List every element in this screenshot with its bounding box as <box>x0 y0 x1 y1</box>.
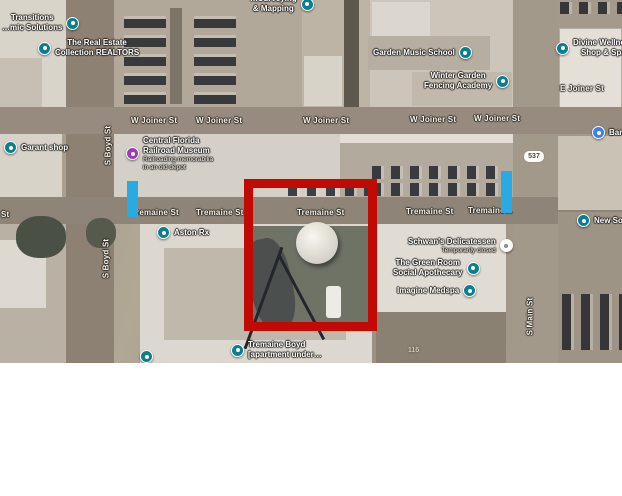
poi-pin-icon <box>467 262 480 275</box>
poi-label: Garden Music School <box>373 48 455 58</box>
street-label-s-main: S Main St <box>526 291 535 343</box>
street-label-w-joiner: W Joiner St <box>303 116 349 125</box>
street-label-e-joiner: E Joiner St <box>560 84 604 93</box>
poi-pin-icon <box>301 0 314 11</box>
poi-pin-icon <box>496 75 509 88</box>
poi-railroad-museum: Central Florida Railroad Museum Railroad… <box>126 136 213 171</box>
legend: Barricade | Local Access Only Work Site <box>0 363 622 496</box>
poi-label: Aston Rx <box>174 228 209 238</box>
poi-label: …mic Solutions <box>2 23 62 33</box>
poi-pin-icon <box>231 344 244 357</box>
street-label-tremaine: Tremaine St <box>406 207 454 216</box>
work-site-box[interactable] <box>244 179 377 331</box>
poi-pin-icon <box>463 284 476 297</box>
street-label-tremaine: Tremaine St <box>196 208 244 217</box>
map-parked-cars <box>124 14 166 104</box>
poi-label: Divine Wellness <box>573 38 622 48</box>
map-building <box>558 136 622 210</box>
map-parked-cars <box>194 12 236 104</box>
shopping-pin-icon <box>592 126 605 139</box>
poi-transitions: Transitions…mic Solutions <box>2 13 79 33</box>
street-label-tremaine: St <box>1 210 9 219</box>
poi-label: Central Florida <box>143 136 199 146</box>
poi-description: Railroading memorabilia <box>143 156 213 164</box>
poi-label: The Real Estate <box>67 38 127 48</box>
poi-label: New Soluti… <box>594 216 622 226</box>
street-label-w-joiner: W Joiner St <box>131 116 177 125</box>
map-building <box>304 56 342 106</box>
poi-imagine-medspa: Imagine Medspa <box>397 284 476 297</box>
map-parked-cars <box>372 166 504 179</box>
poi-pin-icon <box>126 147 139 160</box>
poi-wellness: Divine WellnessShop & Spa <box>556 38 622 58</box>
poi-label: Imagine Medspa <box>397 286 459 296</box>
street-label-w-joiner: W Joiner St <box>410 115 456 124</box>
poi-green-room: The Green RoomSocial Apothecary <box>393 258 480 278</box>
poi-label: [apartment under… <box>248 350 322 360</box>
street-label-tremaine: remaine St <box>136 208 179 217</box>
poi-label: Winter Garden <box>431 71 486 81</box>
poi-label: Fencing Academy <box>424 81 492 91</box>
poi-surveying: …Surveying& Mapping <box>250 0 314 14</box>
poi-label: Tremaine Boyd <box>248 340 305 350</box>
map-trees <box>16 216 66 258</box>
route-shield-537: 537 <box>523 150 545 163</box>
poi-pin-icon <box>66 17 79 30</box>
map-parked-cars <box>560 2 622 14</box>
map-parked-cars <box>562 294 622 350</box>
poi-pin-cutoff <box>140 350 153 363</box>
poi-label: Collection REALTORS <box>55 48 139 58</box>
poi-tremaine-boyd: Tremaine Boyd[apartment under… <box>231 340 322 360</box>
poi-delicatessen: Schwan's Delicatessen Temporarily closed <box>408 237 513 255</box>
poi-garden-music-school: Garden Music School <box>373 46 472 59</box>
poi-pin-icon <box>459 46 472 59</box>
restaurant-icon <box>500 239 513 252</box>
poi-label: Garant shop <box>21 143 68 153</box>
poi-label: & Mapping <box>253 4 294 14</box>
map-parked-cars <box>372 183 504 196</box>
poi-label: Transitions <box>11 13 54 23</box>
poi-label: Social Apothecary <box>393 268 463 278</box>
map-image[interactable]: W Joiner St W Joiner St W Joiner St W Jo… <box>0 0 622 363</box>
poi-pin-icon <box>4 141 17 154</box>
poi-label: The Green Room <box>396 258 460 268</box>
poi-label: Railroad Museum <box>143 146 210 156</box>
street-label-w-joiner: W Joiner St <box>474 114 520 123</box>
poi-pin-icon <box>556 42 569 55</box>
poi-label: Schwan's Delicatessen <box>408 237 496 247</box>
poi-fencing-academy: Winter GardenFencing Academy <box>424 71 509 91</box>
street-label-w-joiner: W Joiner St <box>196 116 242 125</box>
poi-label: Barrel… <box>609 128 622 138</box>
poi-real-estate: The Real EstateCollection REALTORS <box>38 38 139 58</box>
poi-description: in an old depot <box>143 164 186 172</box>
poi-garant-shop: Garant shop <box>4 141 68 154</box>
barricade-marker-west[interactable] <box>127 181 138 217</box>
poi-pin-icon <box>140 350 153 363</box>
poi-new-solutions: New Soluti… <box>577 214 622 227</box>
poi-pin-icon <box>157 226 170 239</box>
map-shadow <box>344 0 359 108</box>
poi-pin-icon <box>38 42 51 55</box>
street-label-s-boyd: S Boyd St <box>104 122 113 170</box>
map-road-s-main <box>513 0 558 363</box>
map-lot <box>170 8 182 104</box>
poi-aston-rx: Aston Rx <box>157 226 209 239</box>
poi-label: Shop & Spa <box>581 48 622 58</box>
map-lot <box>0 58 42 108</box>
poi-status: Temporarily closed <box>442 247 496 255</box>
canvas: W Joiner St W Joiner St W Joiner St W Jo… <box>0 0 622 496</box>
map-lot <box>376 312 506 363</box>
street-label-s-boyd: S Boyd St <box>102 235 111 283</box>
poi-pin-icon <box>577 214 590 227</box>
barricade-marker-east[interactable] <box>501 171 512 213</box>
poi-barrel: Barrel… <box>592 126 622 139</box>
lot-number-label: 116 <box>408 347 419 354</box>
